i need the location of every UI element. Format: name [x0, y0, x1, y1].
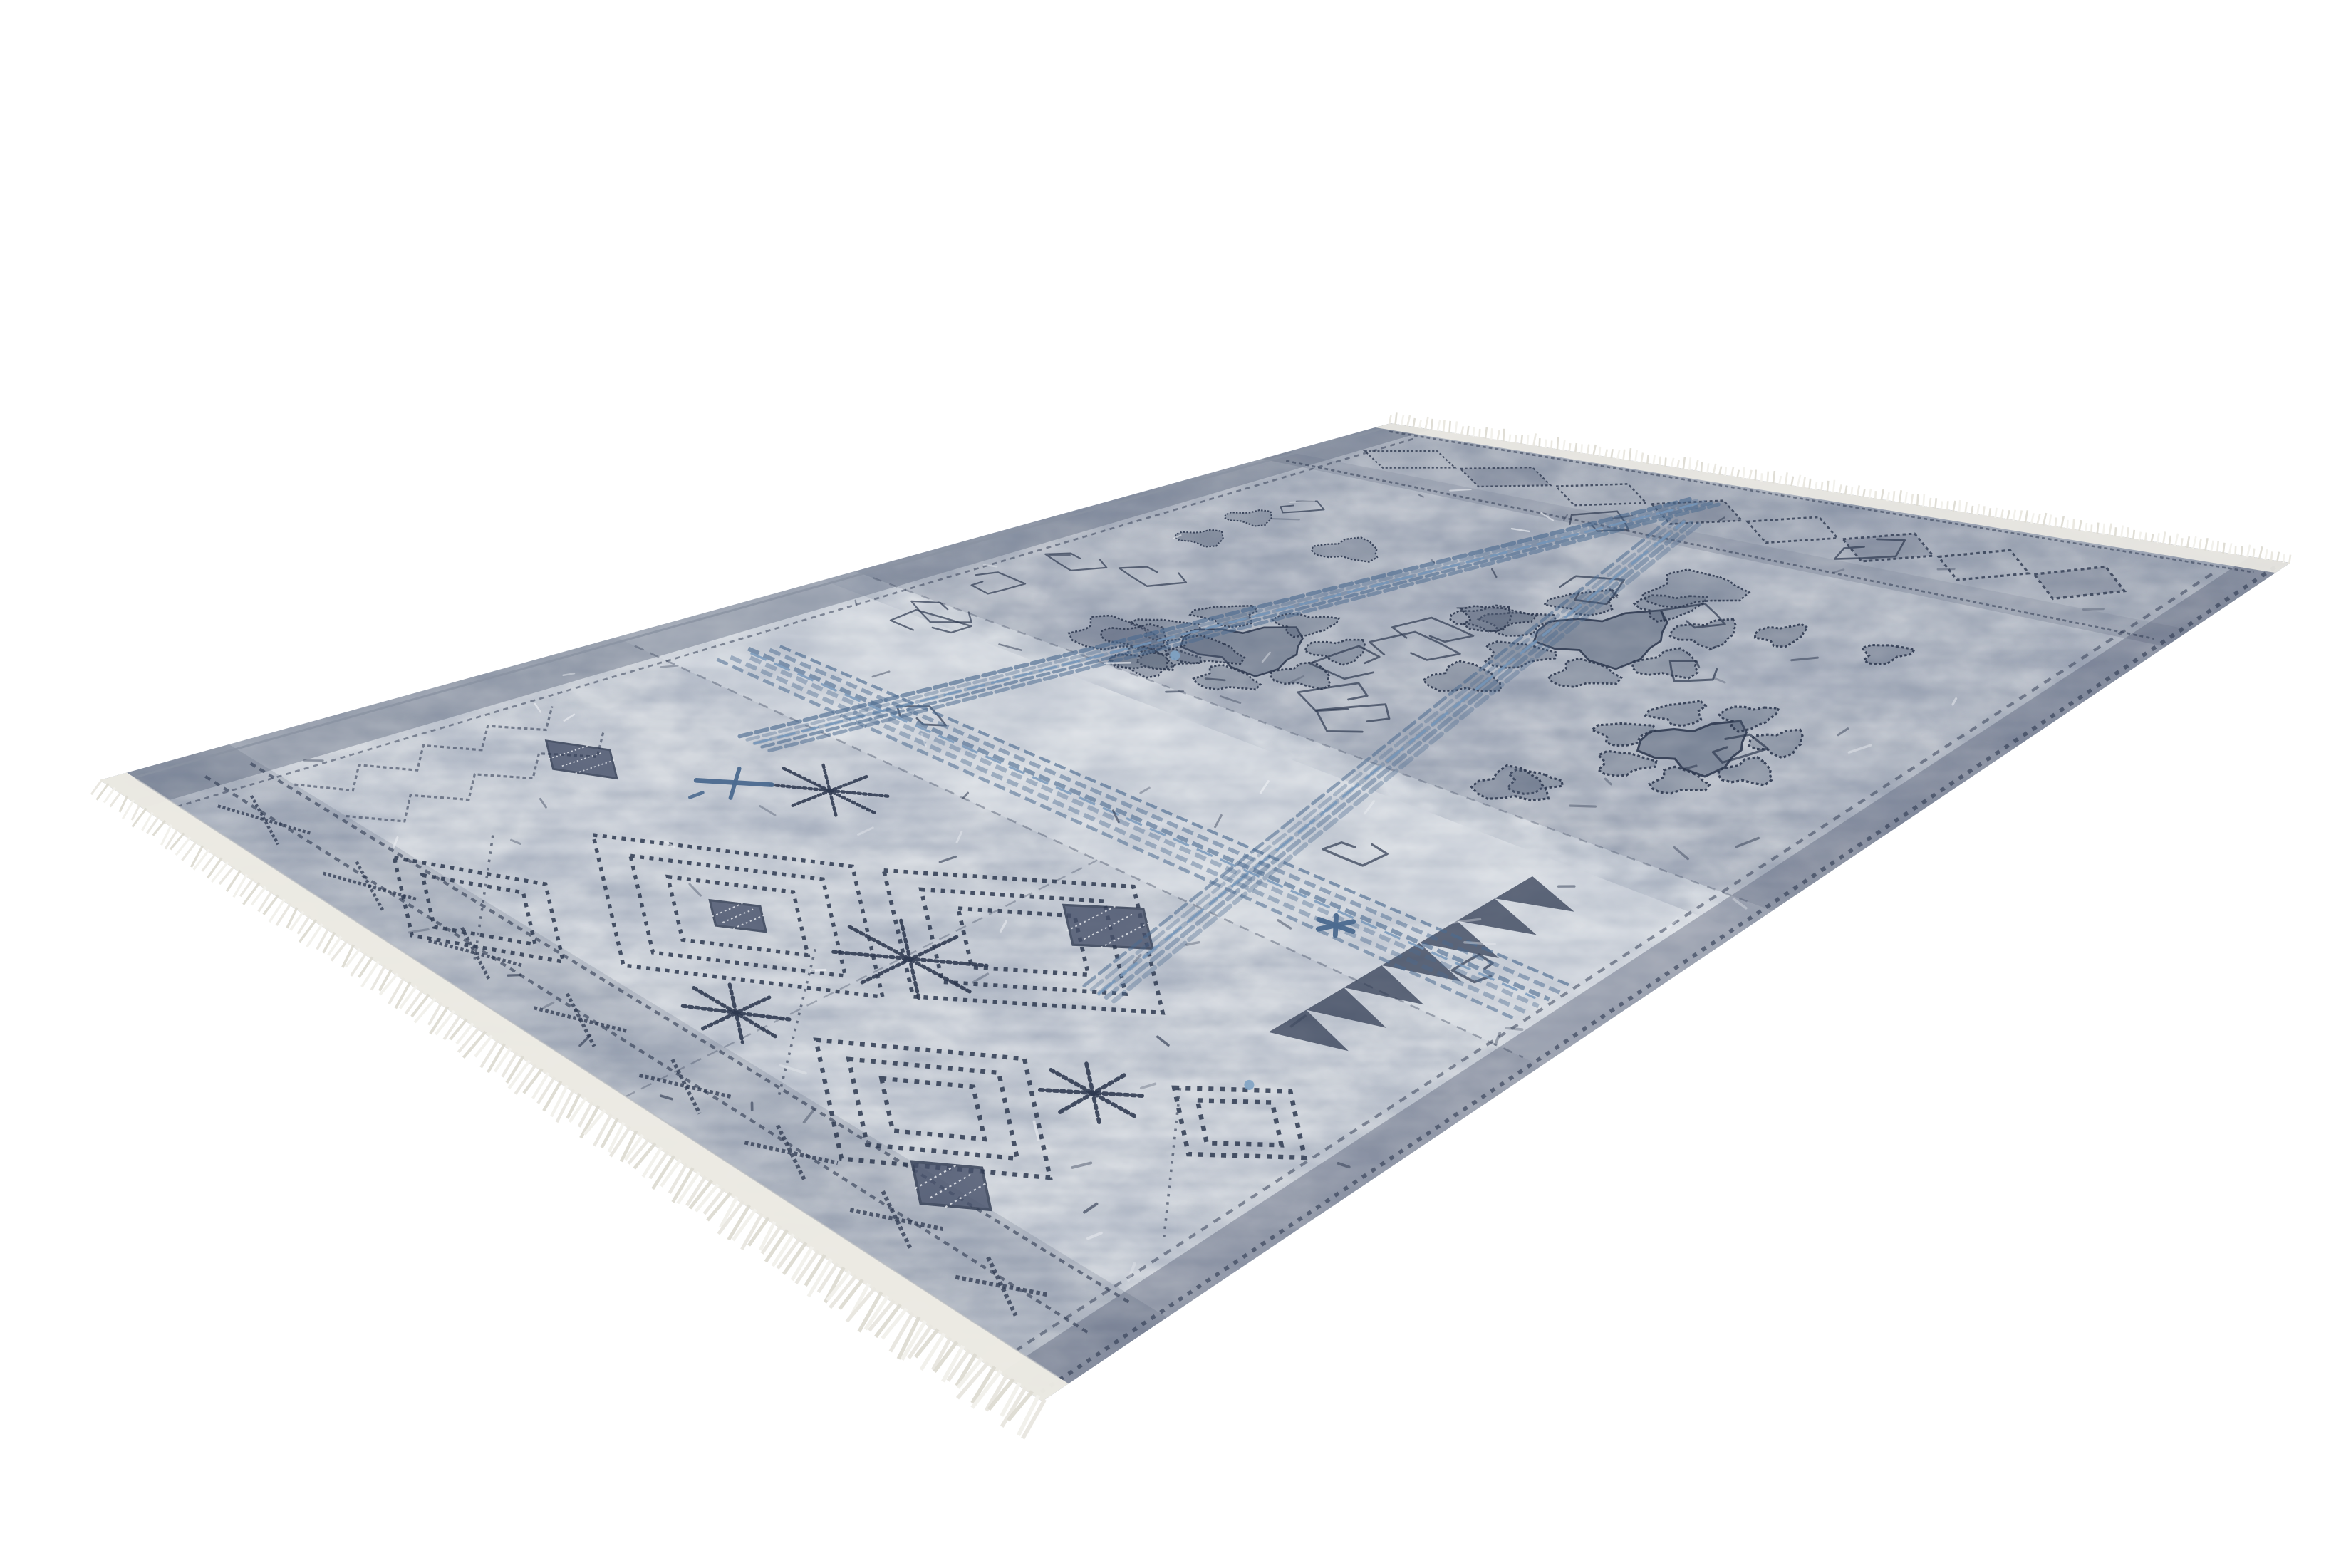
rug-scene-svg	[0, 0, 2351, 1568]
rug-product-photo	[0, 0, 2351, 1568]
